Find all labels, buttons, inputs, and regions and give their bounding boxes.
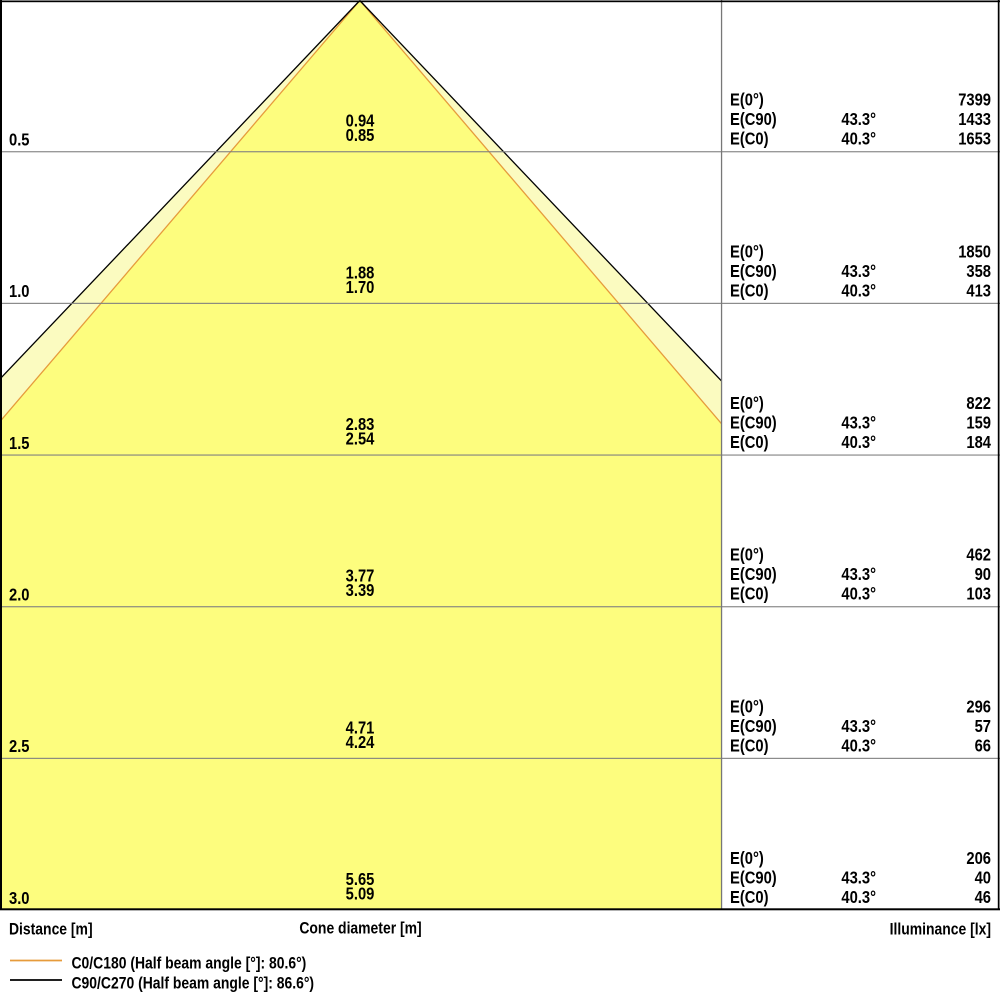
svg-text:40.3°: 40.3° (841, 281, 876, 301)
svg-text:E(C0): E(C0) (730, 736, 769, 756)
svg-text:5.09: 5.09 (346, 884, 375, 904)
svg-text:Illuminance [lx]: Illuminance [lx] (890, 920, 991, 939)
svg-text:E(0°): E(0°) (730, 545, 764, 565)
svg-text:358: 358 (966, 261, 991, 281)
svg-text:E(C90): E(C90) (730, 716, 777, 736)
svg-text:40.3°: 40.3° (841, 736, 876, 756)
svg-text:Distance [m]: Distance [m] (9, 920, 93, 939)
svg-text:2.5: 2.5 (9, 737, 29, 757)
svg-text:1.0: 1.0 (9, 282, 29, 302)
svg-text:46: 46 (975, 888, 991, 908)
svg-text:43.3°: 43.3° (841, 110, 876, 130)
svg-text:43.3°: 43.3° (841, 565, 876, 585)
svg-text:413: 413 (966, 281, 991, 301)
svg-text:E(0°): E(0°) (730, 90, 764, 110)
svg-text:0.5: 0.5 (9, 130, 29, 150)
svg-text:4.24: 4.24 (346, 732, 375, 752)
svg-text:E(0°): E(0°) (730, 242, 764, 262)
svg-text:E(C0): E(C0) (730, 281, 769, 301)
svg-text:E(C0): E(C0) (730, 129, 769, 149)
svg-text:E(C90): E(C90) (730, 261, 777, 281)
svg-text:E(C90): E(C90) (730, 110, 777, 130)
svg-text:40.3°: 40.3° (841, 888, 876, 908)
svg-text:43.3°: 43.3° (841, 413, 876, 433)
svg-text:206: 206 (966, 849, 991, 869)
svg-text:296: 296 (966, 697, 991, 717)
svg-text:43.3°: 43.3° (841, 716, 876, 736)
svg-text:3.39: 3.39 (346, 581, 375, 601)
svg-text:E(C90): E(C90) (730, 565, 777, 585)
svg-text:C0/C180 (Half beam angle [°]:: C0/C180 (Half beam angle [°]: 80.6°) (72, 954, 307, 973)
svg-text:E(C0): E(C0) (730, 584, 769, 604)
svg-text:57: 57 (975, 716, 991, 736)
svg-text:66: 66 (975, 736, 991, 756)
svg-text:822: 822 (966, 394, 991, 414)
svg-text:E(0°): E(0°) (730, 394, 764, 414)
svg-text:40.3°: 40.3° (841, 584, 876, 604)
svg-text:C90/C270 (Half beam angle [°]:: C90/C270 (Half beam angle [°]: 86.6°) (72, 974, 315, 993)
svg-text:90: 90 (975, 565, 991, 585)
svg-text:103: 103 (966, 584, 991, 604)
svg-text:43.3°: 43.3° (841, 261, 876, 281)
svg-text:2.54: 2.54 (346, 429, 375, 449)
svg-text:E(C90): E(C90) (730, 868, 777, 888)
svg-text:40.3°: 40.3° (841, 433, 876, 453)
svg-text:3.0: 3.0 (9, 888, 29, 908)
svg-text:E(0°): E(0°) (730, 849, 764, 869)
svg-text:159: 159 (966, 413, 991, 433)
svg-text:1433: 1433 (958, 110, 991, 130)
svg-text:E(0°): E(0°) (730, 697, 764, 717)
svg-text:0.85: 0.85 (346, 126, 375, 146)
svg-text:E(C0): E(C0) (730, 433, 769, 453)
svg-text:Cone diameter [m]: Cone diameter [m] (299, 919, 421, 938)
svg-text:2.0: 2.0 (9, 585, 29, 605)
svg-text:1.5: 1.5 (9, 433, 29, 453)
svg-text:1.70: 1.70 (346, 277, 375, 297)
svg-text:7399: 7399 (958, 90, 991, 110)
svg-text:40.3°: 40.3° (841, 129, 876, 149)
svg-text:E(C0): E(C0) (730, 888, 769, 908)
svg-text:462: 462 (966, 545, 991, 565)
svg-text:E(C90): E(C90) (730, 413, 777, 433)
svg-text:184: 184 (966, 433, 991, 453)
svg-text:1850: 1850 (958, 242, 991, 262)
svg-text:1653: 1653 (958, 129, 991, 149)
svg-text:40: 40 (975, 868, 991, 888)
svg-text:43.3°: 43.3° (841, 868, 876, 888)
